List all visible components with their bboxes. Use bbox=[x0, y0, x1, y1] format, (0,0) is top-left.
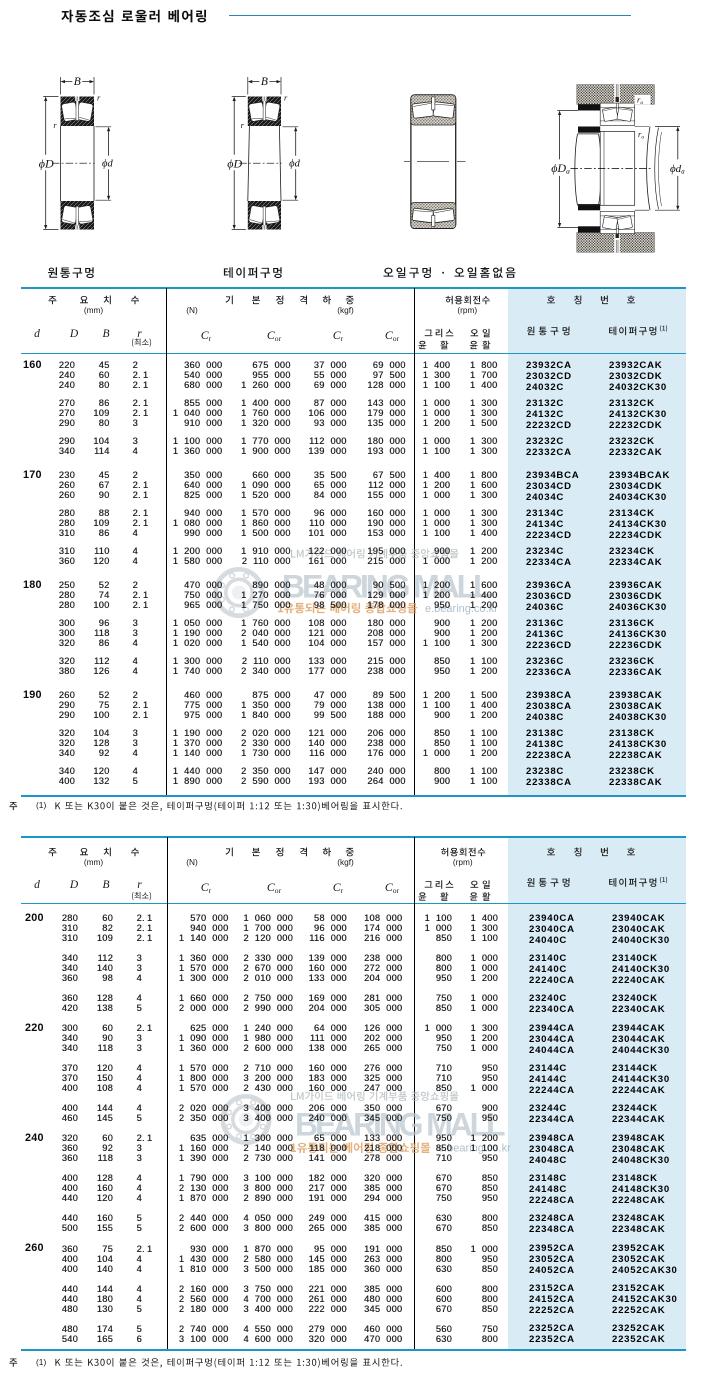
svg-text:ϕDa: ϕDa bbox=[551, 161, 570, 176]
svg-text:r: r bbox=[284, 93, 288, 103]
svg-text:ϕda: ϕda bbox=[670, 163, 685, 176]
svg-text:r: r bbox=[97, 93, 101, 103]
svg-text:ra: ra bbox=[638, 129, 644, 141]
svg-text:B: B bbox=[74, 76, 81, 88]
svg-text:B: B bbox=[261, 76, 268, 88]
svg-text:r: r bbox=[53, 120, 57, 130]
svg-text:ϕd: ϕd bbox=[289, 159, 300, 170]
svg-text:ϕd: ϕd bbox=[102, 159, 113, 170]
svg-text:r: r bbox=[241, 120, 245, 130]
svg-text:ϕD: ϕD bbox=[39, 156, 54, 170]
svg-text:ϕD: ϕD bbox=[227, 156, 242, 170]
